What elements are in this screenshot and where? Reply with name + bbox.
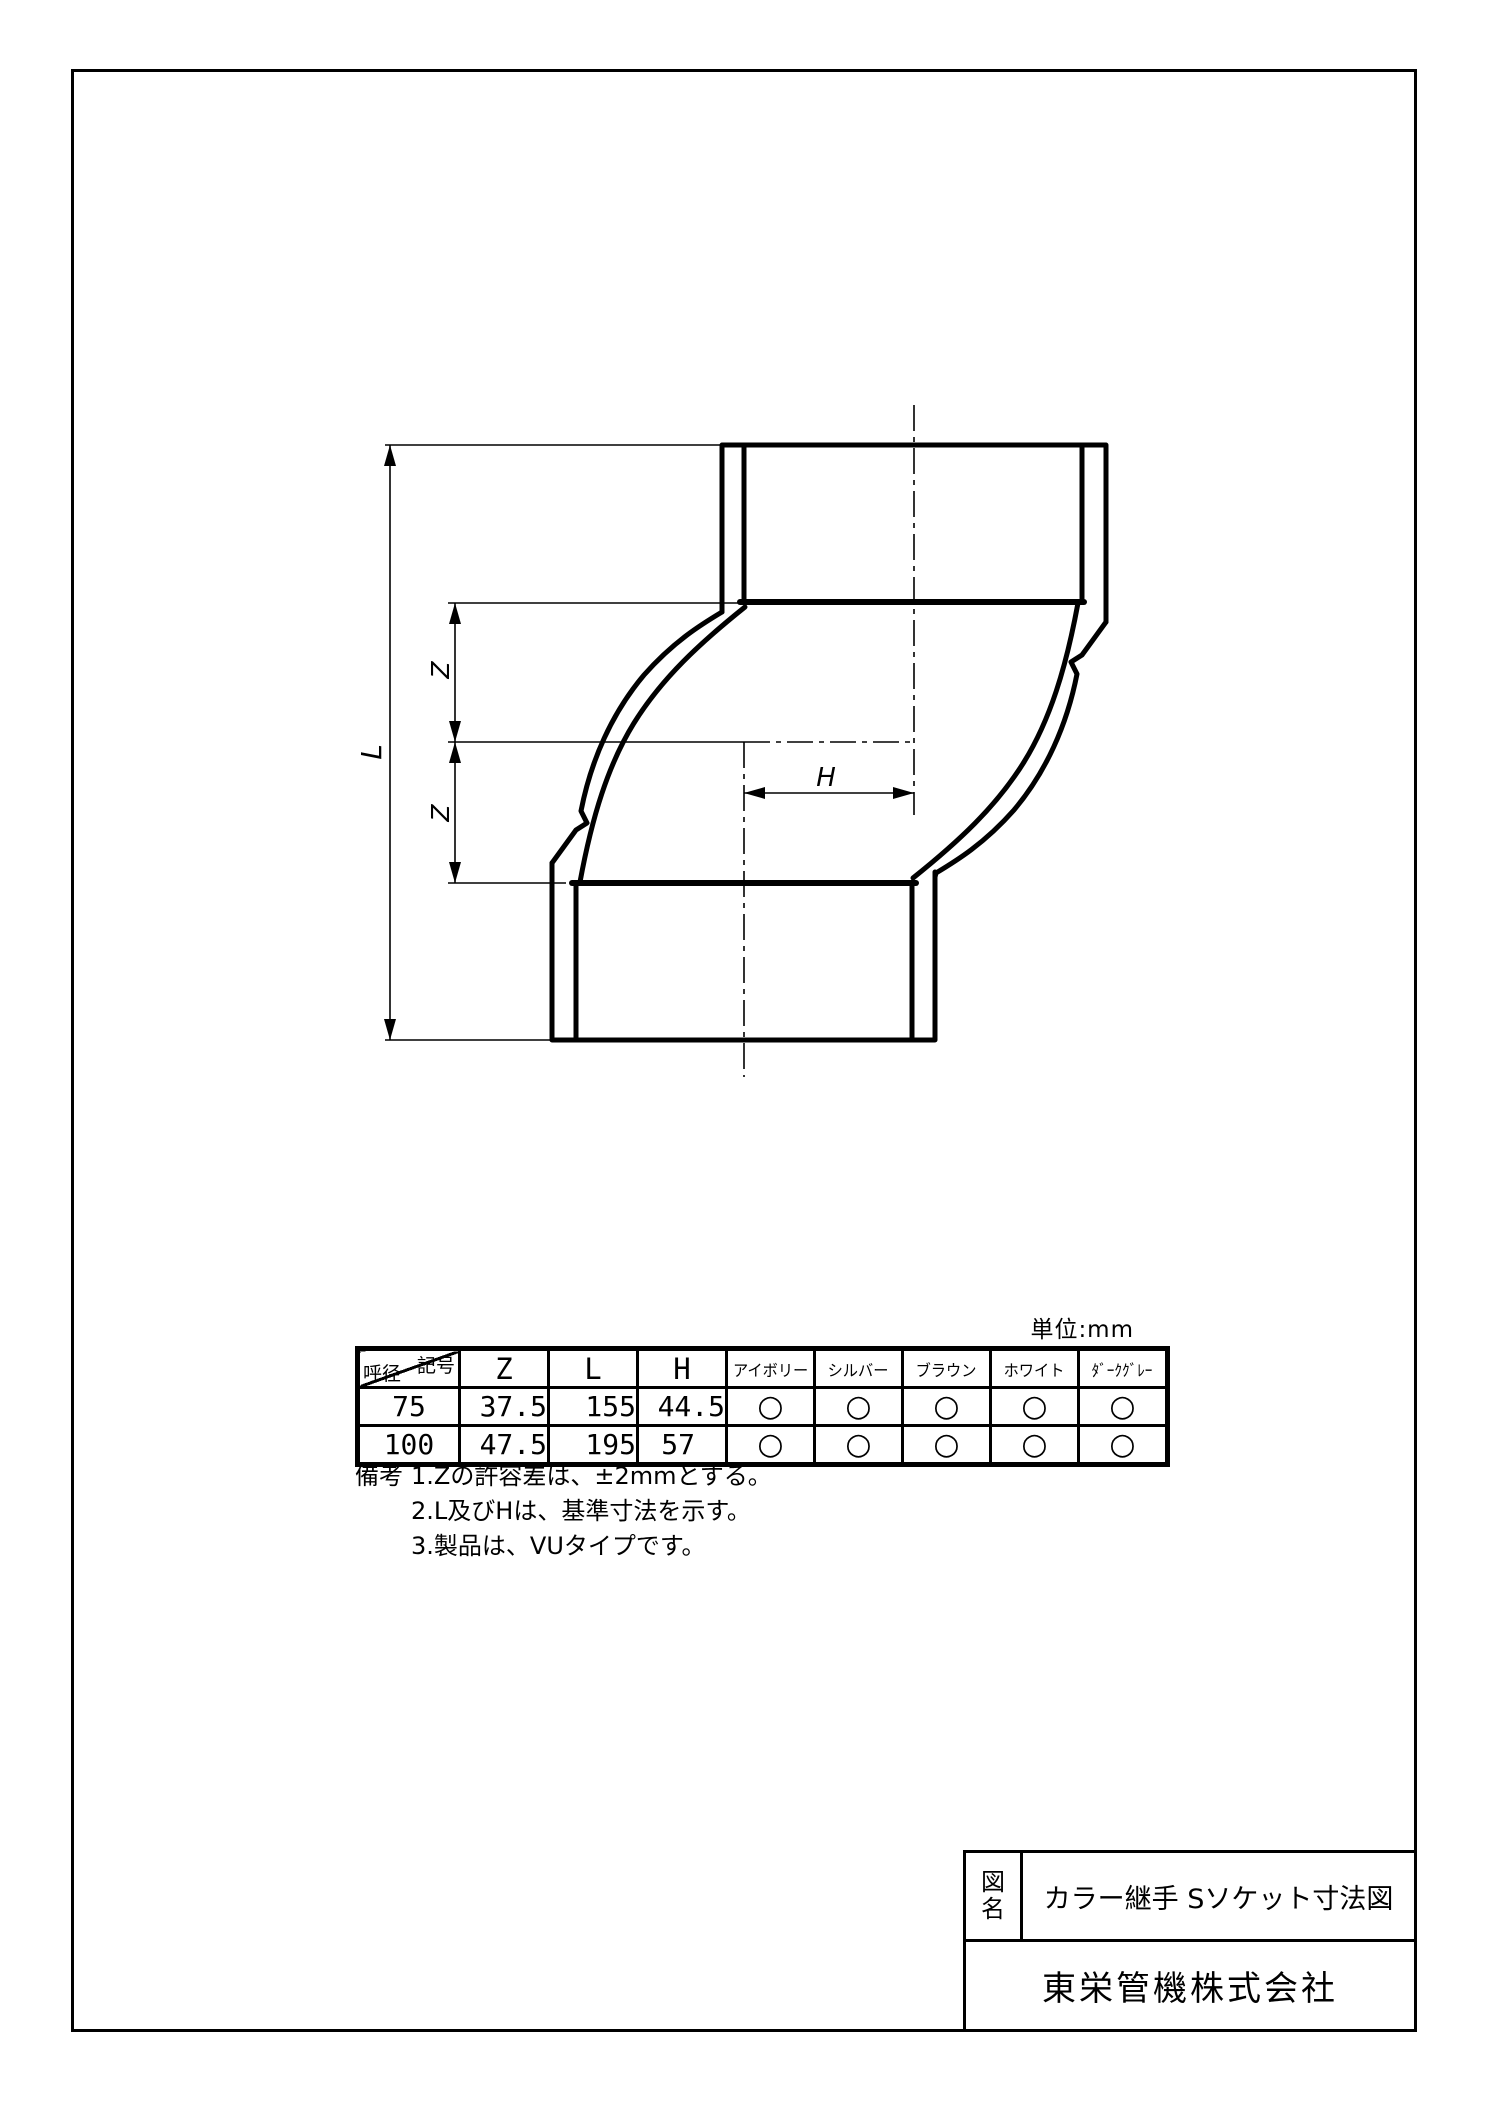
header-color-darkgray: ﾀﾞｰｸｸﾞﾚｰ	[1079, 1349, 1168, 1388]
mark-100-darkgray: ○	[1079, 1426, 1168, 1465]
cell-dia-75: 75	[358, 1388, 460, 1426]
label-L: L	[355, 744, 388, 760]
notes-heading: 備考	[355, 1459, 411, 1494]
header-color-ivory: アイボリー	[727, 1349, 815, 1388]
mark-75-silver: ○	[815, 1388, 903, 1426]
mark-75-darkgray: ○	[1079, 1388, 1168, 1426]
drawing-sheet: L Z Z H 単位:mm 記号 呼径 Z L H アイボリー シルバー ブラウ…	[0, 0, 1488, 2104]
corner-symbol-label: 記号	[417, 1351, 455, 1378]
note-item-1: 1.Zの許容差は、±2mmとする。	[411, 1459, 772, 1494]
mark-75-ivory: ○	[727, 1388, 815, 1426]
table-header-row: 記号 呼径 Z L H アイボリー シルバー ブラウン ホワイト ﾀﾞｰｸｸﾞﾚ…	[358, 1349, 1168, 1388]
note-item-3: 3.製品は、VUタイプです。	[411, 1529, 772, 1564]
drawing-name-label: 図 名	[966, 1853, 1023, 1939]
header-z: Z	[460, 1349, 549, 1388]
table-corner-cell: 記号 呼径	[358, 1349, 460, 1388]
mark-100-brown: ○	[903, 1426, 991, 1465]
label-Z-lower: Z	[426, 804, 455, 823]
body-right-inner-curve	[913, 603, 1078, 878]
note-item-2: 2.L及びHは、基準寸法を示す。	[411, 1494, 772, 1529]
dimension-table: 記号 呼径 Z L H アイボリー シルバー ブラウン ホワイト ﾀﾞｰｸｸﾞﾚ…	[355, 1346, 1170, 1467]
header-h: H	[638, 1349, 727, 1388]
title-block: 図 名 カラー継手 Sソケット寸法図 東栄管機株式会社	[963, 1850, 1417, 2032]
company-name: 東栄管機株式会社	[966, 1942, 1414, 2029]
mark-100-white: ○	[991, 1426, 1079, 1465]
unit-label: 単位:mm	[1000, 1310, 1134, 1344]
s-socket-technical-drawing: L Z Z H	[0, 0, 1488, 2104]
centerlines	[744, 405, 914, 1077]
table-row-75: 75 37.5 155 44.5 ○ ○ ○ ○ ○	[358, 1388, 1168, 1426]
mark-100-silver: ○	[815, 1426, 903, 1465]
drawing-title: カラー継手 Sソケット寸法図	[1023, 1853, 1414, 1939]
mark-75-white: ○	[991, 1388, 1079, 1426]
cell-z-75: 37.5	[460, 1388, 549, 1426]
corner-diameter-label: 呼径	[363, 1359, 401, 1386]
header-color-silver: シルバー	[815, 1349, 903, 1388]
label-Z-upper: Z	[426, 661, 455, 680]
header-l: L	[549, 1349, 638, 1388]
label-H: H	[816, 763, 836, 793]
cell-h-75: 44.5	[638, 1388, 727, 1426]
notes-block: 備考 1.Zの許容差は、±2mmとする。 2.L及びHは、基準寸法を示す。 3.…	[355, 1459, 772, 1564]
mark-75-brown: ○	[903, 1388, 991, 1426]
cell-l-75: 155	[549, 1388, 638, 1426]
body-left-inner-curve	[580, 607, 745, 882]
header-color-brown: ブラウン	[903, 1349, 991, 1388]
header-color-white: ホワイト	[991, 1349, 1079, 1388]
